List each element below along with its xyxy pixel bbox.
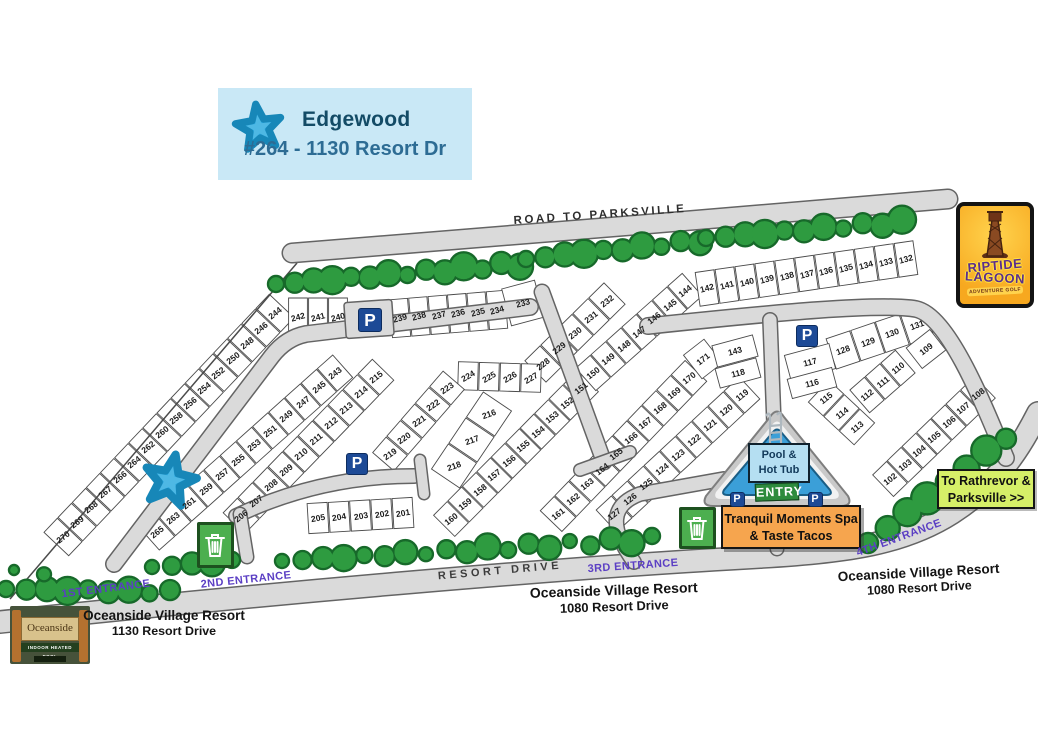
resort-map: 2442462482502522542562582602622642662672… [0, 0, 1038, 739]
rathrevor-line1: To Rathrevor & [939, 473, 1033, 490]
tree-blob-fill [836, 222, 850, 236]
tree-blob-fill [313, 548, 333, 568]
riptide-logo-line2: LAGOON [960, 270, 1031, 286]
tree-blob-fill [286, 274, 304, 292]
tree-blob-fill [420, 548, 432, 560]
tree-blob-fill [777, 223, 793, 239]
riptide-logo-line3: ADVENTURE GOLF [967, 286, 1023, 297]
trash-can-glyph [685, 514, 709, 542]
entry-sign: ENTRY [755, 482, 800, 502]
tree-blob-fill [475, 262, 491, 278]
parking-icon: P [346, 453, 368, 475]
tree-blob-fill [601, 529, 621, 549]
tree-blob-fill [457, 542, 477, 562]
tree-blob-fill [491, 253, 511, 273]
address-block-2: Oceanside Village Resort1080 Resort Driv… [530, 579, 699, 617]
oceanside-entrance-photo: Oceanside INDOOR HEATED POOL [10, 606, 90, 664]
tree-blob-fill [439, 541, 455, 557]
tree-blob-fill [357, 548, 371, 562]
tree-blob-fill [276, 555, 288, 567]
tree-blob-fill [269, 277, 283, 291]
legend-title: Edgewood [302, 108, 411, 132]
tree-blob-fill [794, 221, 814, 241]
tree-blob-fill [564, 535, 576, 547]
address-line1: Oceanside Village Resort [83, 608, 245, 624]
trash-icon [679, 507, 716, 549]
rathrevor-line2: Parksville >> [939, 490, 1033, 507]
tree-blob-fill [672, 232, 690, 250]
tree-blob-fill [295, 552, 311, 568]
oceanside-sign-footer [34, 656, 66, 662]
tree-blob-fill [538, 537, 560, 559]
oceanside-sign-title: Oceanside [22, 618, 78, 639]
tree-blob-fill [395, 541, 417, 563]
parking-icon: P [358, 308, 382, 332]
tree-blob-fill [889, 207, 915, 233]
tree-blob-fill [717, 228, 735, 246]
tree-blob-fill [583, 538, 599, 554]
tree-blob-fill [519, 252, 533, 266]
tree-blob-fill [401, 268, 415, 282]
spa-sign-line2: & Taste Tacos [723, 528, 859, 545]
tree-blob-fill [376, 547, 394, 565]
tree-blob-fill [18, 581, 36, 599]
parking-icon: P [730, 492, 745, 507]
tree-blob-fill [417, 261, 435, 279]
tree-blob-fill [520, 535, 538, 553]
riptide-tower-icon [960, 206, 1030, 258]
tree-blob-fill [997, 430, 1015, 448]
pool-hot-tub-sign: Pool & Hot Tub [748, 443, 810, 483]
tree-blob-fill [812, 215, 836, 239]
tree-blob-fill [596, 242, 612, 258]
address-line2: 1130 Resort Drive [83, 624, 245, 639]
rathrevor-direction-sign: To Rathrevor & Parksville >> [937, 469, 1035, 509]
spa-tacos-sign: Tranquil Moments Spa & Taste Tacos [721, 505, 861, 549]
tree-blob-fill [645, 529, 659, 543]
riptide-lagoon-logo: RIPTIDE LAGOON ADVENTURE GOLF [956, 202, 1034, 308]
tree-blob-fill [476, 535, 500, 559]
tree-blob-fill [343, 269, 359, 285]
tree-blob-fill [537, 248, 555, 266]
tree-blob-fill [571, 241, 597, 267]
tree-blob-fill [613, 240, 633, 260]
tree-blob-fill [451, 253, 477, 279]
tree-blob-fill [332, 546, 356, 570]
oceanside-sign-subtitle: INDOOR HEATED POOL [21, 643, 79, 652]
tree-blob-fill [752, 221, 778, 247]
spa-sign-line1: Tranquil Moments Spa [723, 511, 859, 528]
tree-blob-fill [161, 581, 179, 599]
tree-blob-fill [320, 267, 346, 293]
tree-blob-fill [620, 531, 644, 555]
tree-blob-fill [38, 568, 50, 580]
pool-sign-line2: Hot Tub [750, 463, 808, 478]
lot-label-204: 204 [331, 511, 347, 523]
tree-blob-fill [377, 261, 401, 285]
trash-can-glyph [203, 531, 227, 559]
tree-blob-fill [972, 437, 1000, 465]
legend-unit: #264 - 1130 Resort Dr [218, 138, 472, 161]
legend-card: Edgewood #264 - 1130 Resort Dr [218, 88, 472, 180]
tree-blob-fill [501, 543, 515, 557]
tree-blob-fill [655, 240, 669, 254]
mid-road-hammerhead [420, 460, 424, 494]
oceanside-sign-board: Oceanside [21, 617, 79, 641]
tree-blob-fill [10, 566, 18, 574]
parking-icon: P [796, 325, 818, 347]
tree-blob-fill [630, 234, 654, 258]
lot-label-203: 203 [353, 509, 369, 521]
address-block-1: Oceanside Village Resort1130 Resort Driv… [83, 608, 245, 639]
sign-post-left [12, 610, 21, 662]
trash-icon [197, 522, 234, 568]
pool-arm-road [770, 320, 774, 424]
parking-icon: P [808, 492, 823, 507]
tree-blob-fill [699, 231, 713, 245]
tree-blob-fill [854, 214, 872, 232]
tree-blob-fill [146, 561, 158, 573]
tree-blob-fill [164, 558, 180, 574]
tree-blob-fill [360, 268, 380, 288]
pool-sign-line1: Pool & [750, 448, 808, 463]
